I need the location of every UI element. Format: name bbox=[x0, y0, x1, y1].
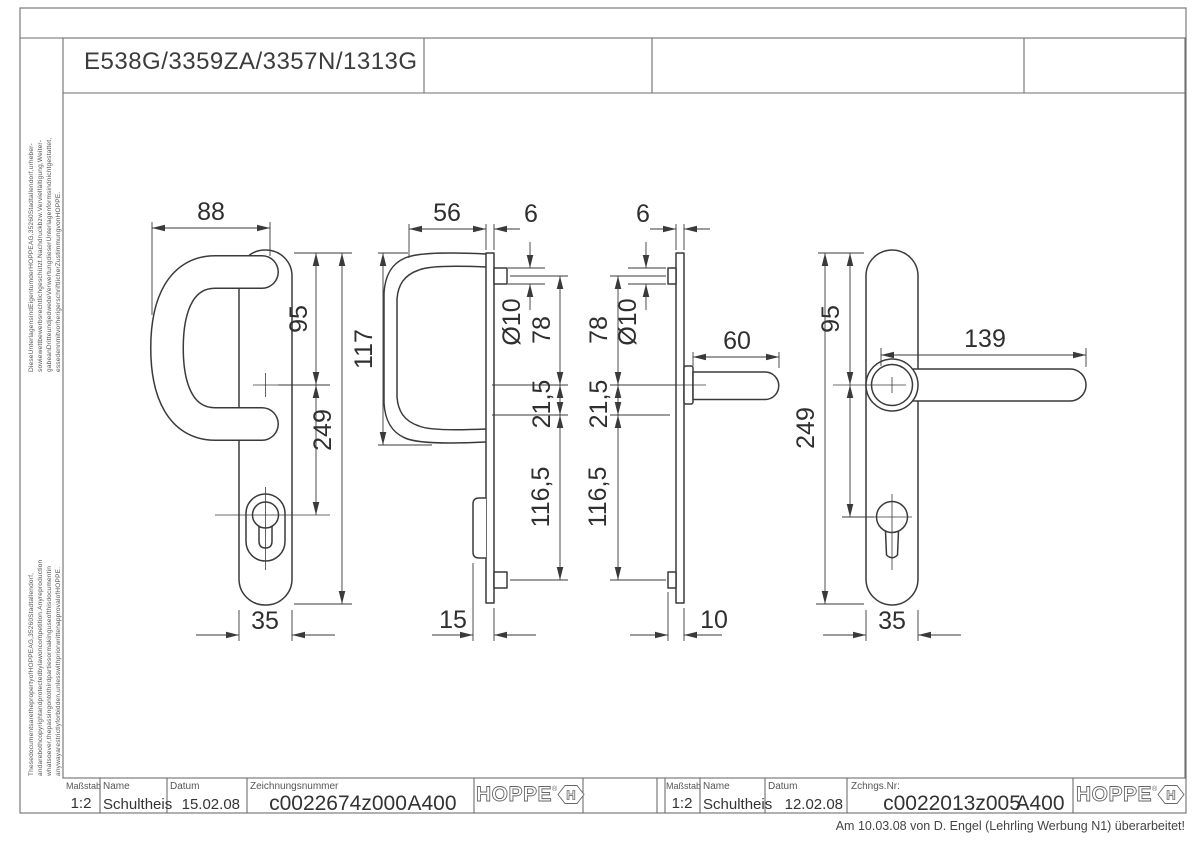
dim-label-15: 15 bbox=[439, 606, 467, 634]
dim-label-6-in: 6 bbox=[636, 200, 650, 228]
drawing-sheet: 88 95 249 35 56 bbox=[0, 0, 1200, 849]
hoppe-logo-text: HOPPE bbox=[476, 783, 552, 806]
name-value: Schultheis bbox=[703, 796, 772, 813]
drawing-number-value: c0022013z005 bbox=[883, 792, 1021, 815]
copyright-line: whatsoever,thepassingontothirdpartiesorm… bbox=[45, 560, 54, 776]
hoppe-logo: HOPPE ® H bbox=[1076, 783, 1184, 806]
view-pull-handle-front: 88 95 249 35 bbox=[152, 198, 352, 641]
copyright-line: sowiewettbewerbsrechtlichgeschützt.Nachd… bbox=[36, 138, 45, 372]
registered-mark-icon: ® bbox=[552, 785, 558, 793]
name-label: Name bbox=[703, 781, 730, 792]
date-value: 15.02.08 bbox=[182, 796, 240, 813]
dim-label-6-out: 6 bbox=[524, 200, 538, 228]
name-value: Schultheis bbox=[103, 796, 172, 813]
hoppe-hexagon-letter: H bbox=[566, 788, 575, 803]
copyright-line: DieseUnterlagensindEigentumderHOPPEAG,35… bbox=[27, 138, 36, 372]
view-pull-handle-side: 56 6 117 Ø10 78 21,5 116,5 bbox=[350, 199, 568, 641]
dim-label-60: 60 bbox=[723, 327, 751, 355]
copyright-note-german: DieseUnterlagensindEigentumderHOPPEAG,35… bbox=[27, 138, 63, 372]
dim-label-78-out: 78 bbox=[528, 316, 556, 344]
copyright-line: ThesedocumentsarethepropertyofHOPPEAG,35… bbox=[27, 560, 36, 776]
dim-label-dia10-out: Ø10 bbox=[498, 298, 526, 345]
dim-label-35-lever: 35 bbox=[878, 607, 906, 635]
copyright-line: anywayarestrictlyforbidden,unlesswithpri… bbox=[54, 560, 63, 776]
drawing-number-value: c0022674z000 bbox=[269, 792, 407, 815]
dim-label-21-5-in: 21,5 bbox=[585, 380, 613, 429]
title-block-right: Maßstab 1:2 Name Schultheis Datum 12.02.… bbox=[666, 781, 1184, 815]
dim-label-116-5-out: 116,5 bbox=[527, 467, 555, 528]
page-title: E538G/3359ZA/3357N/1313G bbox=[84, 48, 418, 76]
dim-label-249-pull: 249 bbox=[309, 409, 337, 451]
date-label: Datum bbox=[170, 781, 199, 792]
drawing-number-label: Zchngs.Nr: bbox=[851, 781, 900, 792]
copyright-line: gabeanDritteundjedwedeVerwertungdieserUn… bbox=[45, 138, 54, 372]
drawing-revision: A400 bbox=[1015, 792, 1064, 815]
hoppe-logo-text: HOPPE bbox=[1076, 783, 1152, 806]
drawing-canvas: 88 95 249 35 56 bbox=[0, 0, 1200, 849]
dim-label-35-pull: 35 bbox=[251, 607, 279, 635]
hoppe-hexagon-letter: H bbox=[1166, 788, 1175, 803]
scale-label: Maßstab bbox=[666, 781, 701, 791]
scale-value: 1:2 bbox=[672, 795, 693, 812]
scale-value: 1:2 bbox=[71, 795, 92, 812]
dim-label-249-lever: 249 bbox=[792, 407, 820, 449]
registered-mark-icon: ® bbox=[1152, 785, 1158, 793]
copyright-note-english: ThesedocumentsarethepropertyofHOPPEAG,35… bbox=[27, 560, 63, 776]
copyright-line: essedennmitvorherigerschriftlicherZustim… bbox=[54, 138, 63, 372]
date-label: Datum bbox=[768, 781, 797, 792]
date-value: 12.02.08 bbox=[785, 796, 843, 813]
dim-label-139: 139 bbox=[964, 325, 1006, 353]
dim-label-88: 88 bbox=[197, 198, 225, 226]
dim-label-95-lever: 95 bbox=[817, 305, 845, 333]
view-lever-front: 95 249 139 35 bbox=[792, 250, 1086, 641]
title-block-left: Maßstab 1:2 Name Schultheis Datum 15.02.… bbox=[66, 781, 584, 815]
dim-label-21-5-out: 21,5 bbox=[528, 380, 556, 429]
dim-label-95-pull: 95 bbox=[285, 305, 313, 333]
dim-label-117: 117 bbox=[350, 329, 378, 369]
hoppe-logo: HOPPE ® H bbox=[476, 783, 584, 806]
name-label: Name bbox=[103, 781, 130, 792]
dim-label-116-5-in: 116,5 bbox=[584, 467, 612, 528]
dim-label-78-in: 78 bbox=[585, 316, 613, 344]
drawing-revision: A400 bbox=[407, 792, 456, 815]
drawing-number-label: Zeichnungsnummer bbox=[250, 781, 339, 792]
revision-note: Am 10.03.08 von D. Engel (Lehrling Werbu… bbox=[785, 819, 1185, 833]
dim-label-56: 56 bbox=[433, 199, 461, 227]
copyright-line: andarebothcopyrightandprotectedbylawonco… bbox=[36, 560, 45, 776]
dim-label-10: 10 bbox=[700, 606, 728, 634]
view-lever-side: 6 Ø10 78 21,5 116,5 60 10 bbox=[584, 200, 779, 641]
scale-label: Maßstab bbox=[66, 781, 101, 791]
